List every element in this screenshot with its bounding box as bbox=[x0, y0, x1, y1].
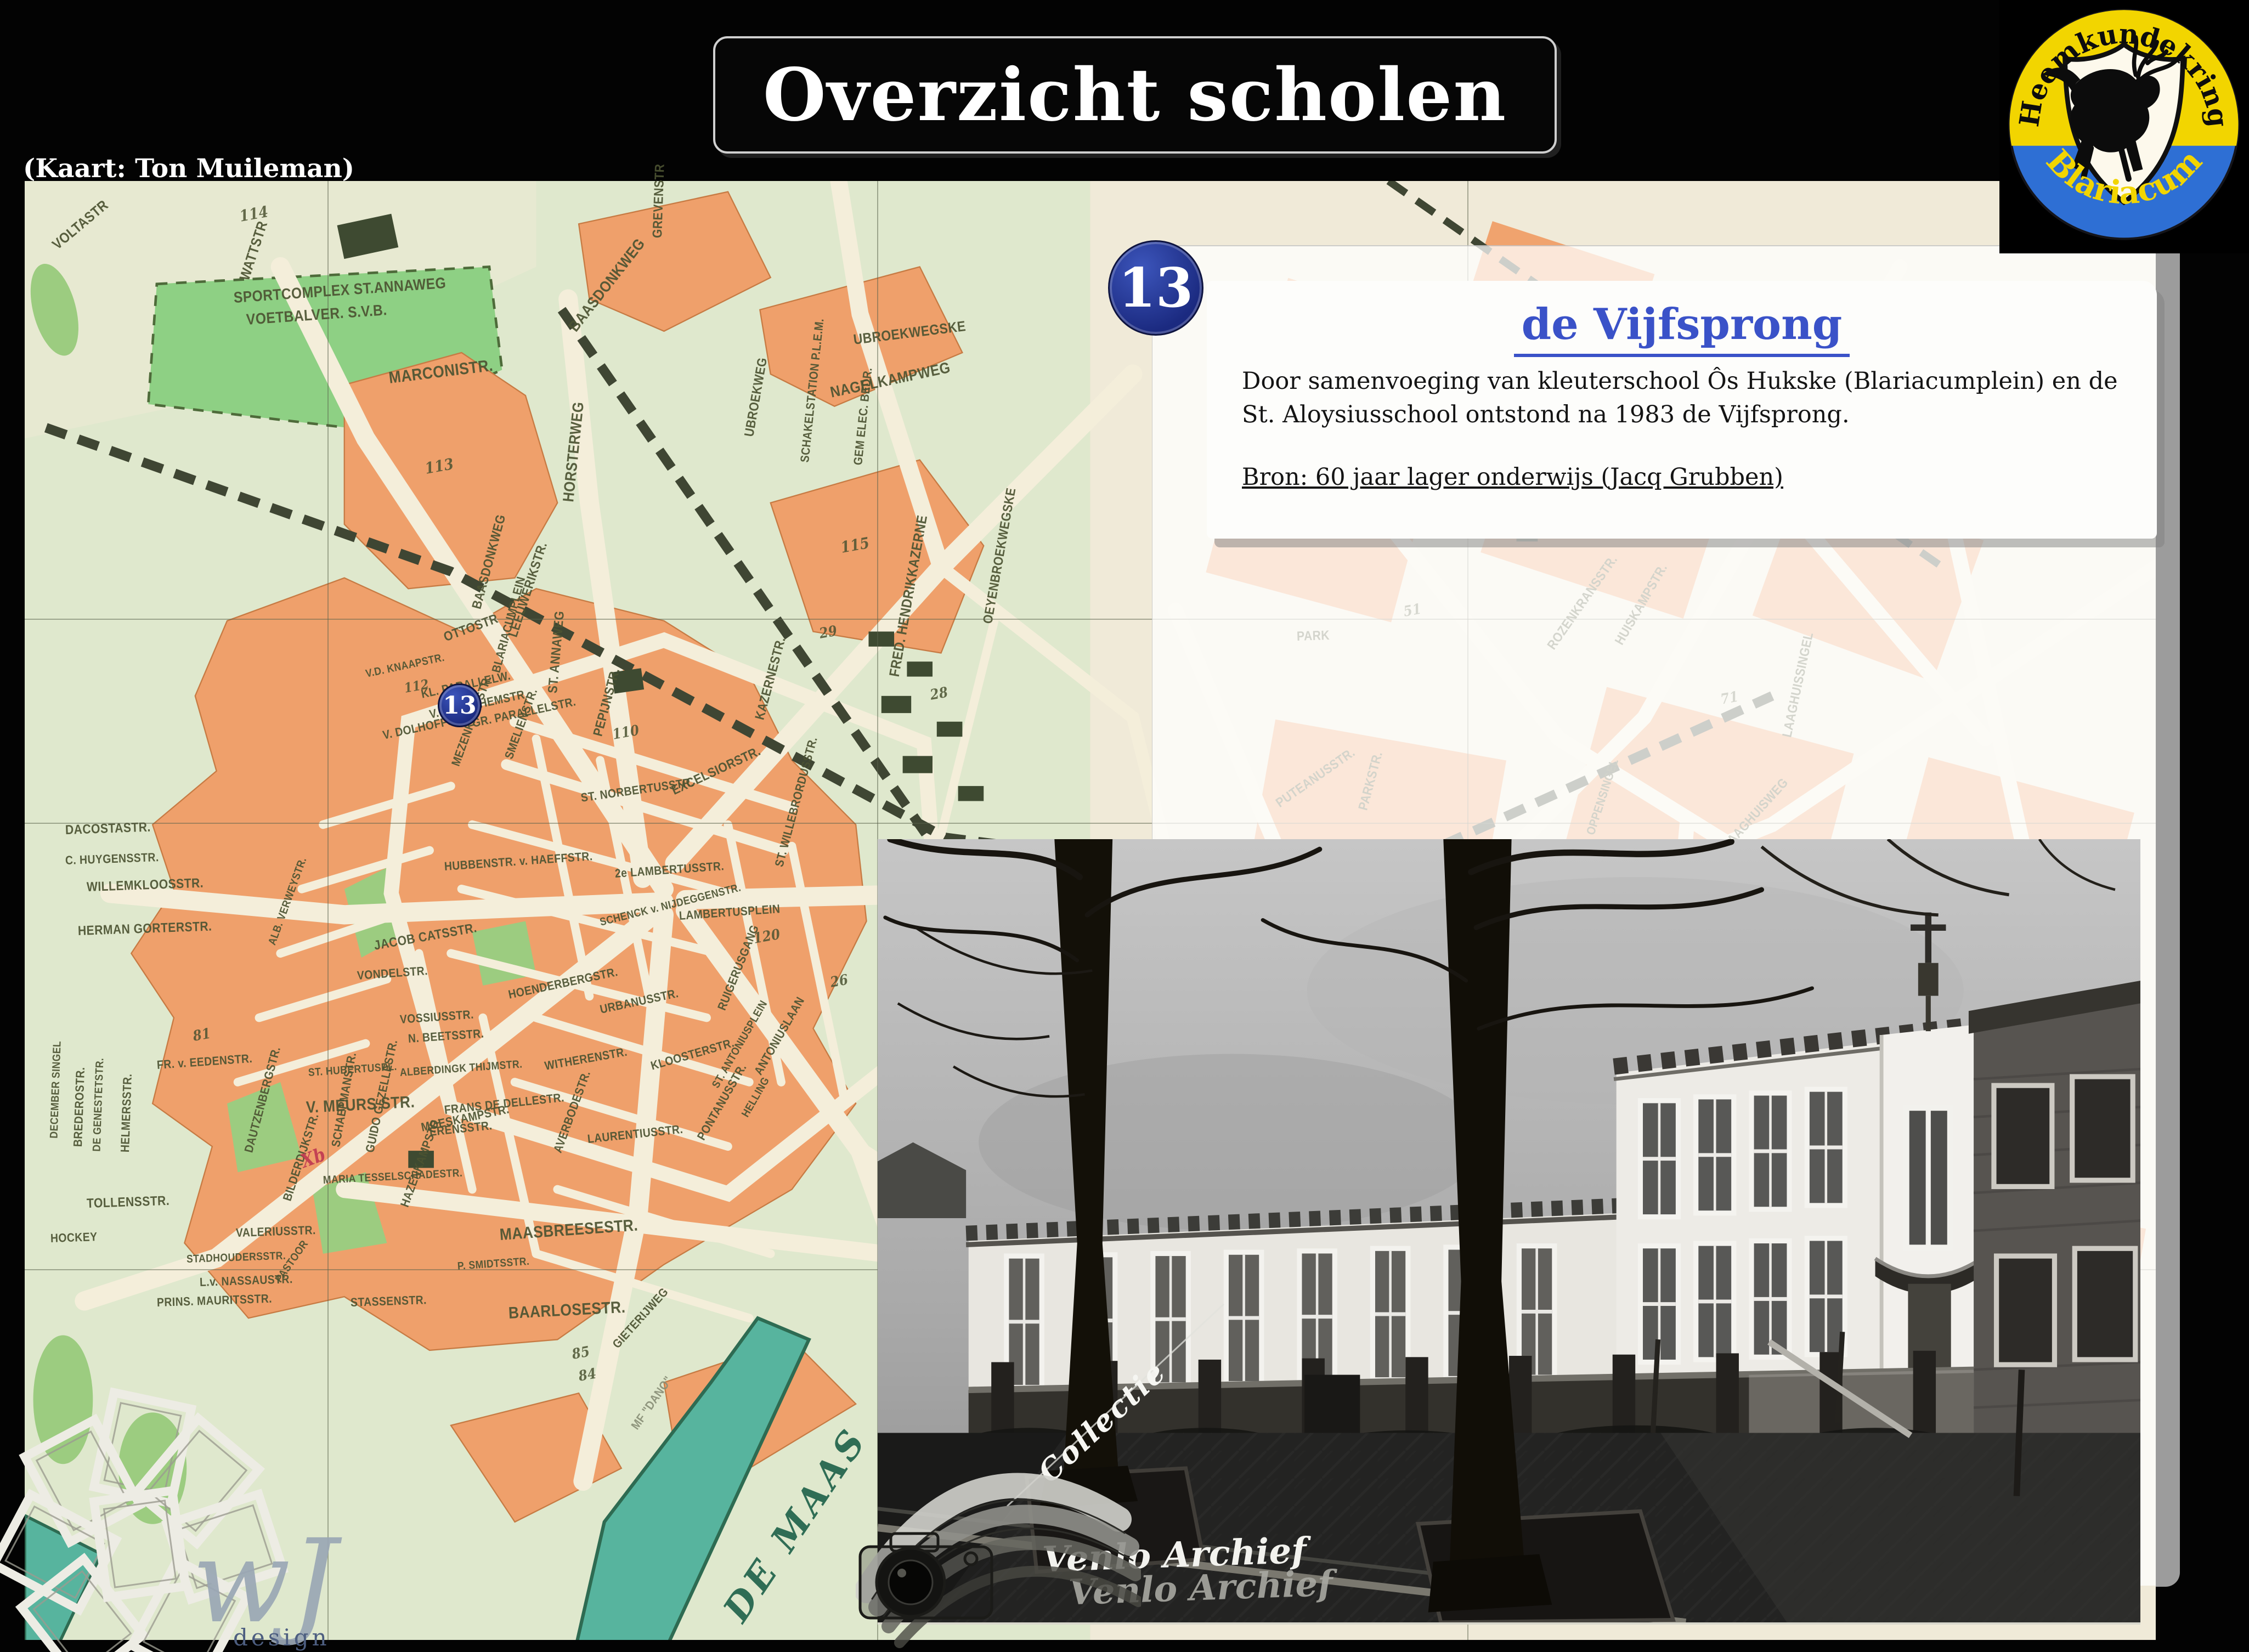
map-street-label: 115 bbox=[839, 534, 871, 557]
map-street-label: WATTSTR bbox=[236, 219, 271, 282]
map-street-label: VOETBALVER. S.V.B. bbox=[246, 301, 388, 329]
map-street-label: WITHERENSTR. bbox=[544, 1045, 629, 1073]
map-street-label: 84 bbox=[577, 1366, 597, 1385]
map-street-label: ST. ANNAWEG bbox=[546, 610, 568, 694]
map-street-label: 26 bbox=[829, 972, 849, 991]
map-street-label: SCHAKELSTATION P.L.E.M. bbox=[798, 318, 827, 463]
school-name-heading: de Vijfsprong bbox=[1514, 299, 1850, 357]
map-street-label: N. BEETSSTR. bbox=[408, 1026, 484, 1046]
map-street-label: ALB. VERWEYSTR. bbox=[266, 856, 309, 947]
map-street-label: 29 bbox=[818, 623, 838, 642]
badge-number: 13 bbox=[1118, 257, 1193, 320]
map-street-label: 2e LAMBERTUSSTR. bbox=[614, 859, 725, 881]
map-street-label: MF "DANO" bbox=[628, 1373, 675, 1432]
map-street-label: GREVENSTR bbox=[650, 164, 668, 239]
map-street-label: VOSSIUSSTR. bbox=[399, 1008, 474, 1027]
number-badge-map-marker: 13 bbox=[438, 683, 482, 727]
map-street-label: MARIA TESSELSCHADESTR. bbox=[323, 1167, 462, 1187]
heemkundekring-logo: Heemkundekring Blariacum bbox=[1999, 0, 2249, 253]
wj-design-logo: wJ design bbox=[0, 1382, 357, 1652]
map-street-label: OEYENBROEKWEGSKE bbox=[980, 486, 1019, 625]
map-street-label: VONDELSTR. bbox=[357, 964, 428, 983]
map-street-label: HUBBENSTR. v. HAEFFSTR. bbox=[444, 849, 593, 874]
map-street-label: KAZERNESTR. bbox=[753, 636, 789, 722]
logo-emblem-icon: Heemkundekring Blariacum bbox=[2006, 7, 2242, 242]
map-street-label: HOENDERBERGSTR. bbox=[507, 965, 619, 1002]
map-street-label: HORSTERWEG bbox=[560, 401, 587, 503]
map-credit: (Kaart: Ton Muileman) bbox=[23, 154, 354, 184]
map-street-label: ST. NORBERTUSSTR. bbox=[580, 775, 694, 805]
map-street-label: 110 bbox=[612, 722, 641, 743]
wj-design-label: design bbox=[233, 1624, 330, 1651]
map-street-label: STASSENSTR. bbox=[351, 1293, 427, 1310]
map-street-label: ST. WILLEBRORDUSSTR. bbox=[772, 736, 821, 869]
map-street-label: BAASDONKWEG bbox=[566, 235, 649, 335]
map-street-label: TOLLENSSTR. bbox=[86, 1193, 169, 1212]
map-street-label: NAGELKAMPWEG bbox=[828, 359, 952, 401]
map-street-label: 81 bbox=[191, 1026, 212, 1045]
map-street-label: ALBERDINGK THIJMSTR. bbox=[399, 1058, 523, 1079]
map-street-label: UBROEKWEG bbox=[742, 357, 771, 438]
title-box: Overzicht scholen bbox=[713, 36, 1557, 154]
map-street-label: HELMERSSTR. bbox=[118, 1073, 135, 1152]
map-street-label: P. SMIDTSSTR. bbox=[457, 1255, 530, 1273]
camera-watermark-icon bbox=[856, 1410, 1141, 1651]
map-street-label: HERMAN GORTERSTR. bbox=[78, 919, 212, 939]
map-street-label: DECEMBER SINGEL bbox=[48, 1041, 64, 1139]
map-street-label: VALERIUSSTR. bbox=[235, 1223, 316, 1240]
map-street-label: STADHOUDERSSTR. bbox=[187, 1250, 286, 1266]
map-street-label: MAASBREESESTR. bbox=[499, 1216, 638, 1244]
panel-shadow bbox=[2156, 245, 2180, 1587]
map-street-label: GIETERIJWEG bbox=[609, 1285, 671, 1351]
map-street-label: BAARLOSESTR. bbox=[508, 1298, 626, 1323]
map-street-label: FRED. HENDRIKKAZERNE bbox=[886, 514, 931, 678]
map-street-label: LAURENTIUSSTR. bbox=[586, 1122, 683, 1146]
map-street-label: C. HUYGENSSTR. bbox=[65, 850, 159, 868]
map-street-label: JACOB CATSSTR. bbox=[373, 920, 478, 954]
info-card: de Vijfsprong Door samenvoeging van kleu… bbox=[1207, 281, 2157, 539]
map-street-label: 113 bbox=[424, 455, 456, 478]
card-body-line: St. Aloysiusschool ontstond na 1983 de V… bbox=[1242, 398, 2122, 432]
map-street-label: HOCKEY bbox=[50, 1230, 97, 1246]
map-street-label: WILLEMKLOOSSTR. bbox=[86, 876, 204, 895]
map-street-label: BREDEROSTR. bbox=[71, 1066, 88, 1147]
map-street-label: PRINS. MAURITSSTR. bbox=[156, 1292, 272, 1310]
map-street-label: URBANUSSTR. bbox=[598, 986, 680, 1017]
badge-number: 13 bbox=[443, 692, 476, 720]
map-street-label: MARCONISTR. bbox=[388, 357, 494, 388]
card-body: Door samenvoeging van kleuterschool Ôs H… bbox=[1242, 365, 2122, 432]
map-street-label: SCHENCK v. NIJDEGGENSTR. bbox=[598, 881, 742, 929]
map-street-label: DE GENESTETSTR. bbox=[91, 1058, 107, 1152]
page-title: Overzicht scholen bbox=[763, 53, 1507, 138]
map-street-label: HELLING bbox=[739, 1076, 772, 1120]
map-street-label: V. MEURS STR. bbox=[306, 1093, 415, 1117]
map-street-label: 85 bbox=[571, 1344, 591, 1363]
map-street-label: FR. v. EEDENSTR. bbox=[156, 1051, 253, 1072]
map-street-label: 28 bbox=[929, 684, 950, 704]
map-street-label: VOLTASTR bbox=[49, 196, 111, 253]
card-body-line: Door samenvoeging van kleuterschool Ôs H… bbox=[1242, 365, 2122, 398]
map-street-label: BAASDONKWEG bbox=[469, 513, 509, 611]
map-street-label: SPORTCOMPLEX ST.ANNAWEG bbox=[233, 274, 447, 307]
map-street-label: UBROEKWEGSKE bbox=[852, 318, 967, 348]
map-street-label: V.D. KNAAPSTR. bbox=[364, 652, 445, 681]
map-street-label: OTTOSTR bbox=[442, 612, 501, 646]
card-source: Bron: 60 jaar lager onderwijs (Jacq Grub… bbox=[1242, 463, 2122, 491]
number-badge-large: 13 bbox=[1108, 240, 1203, 336]
slide: VOLTASTRWATTSTRMARCONISTR.SPORTCOMPLEX S… bbox=[0, 0, 2249, 1652]
